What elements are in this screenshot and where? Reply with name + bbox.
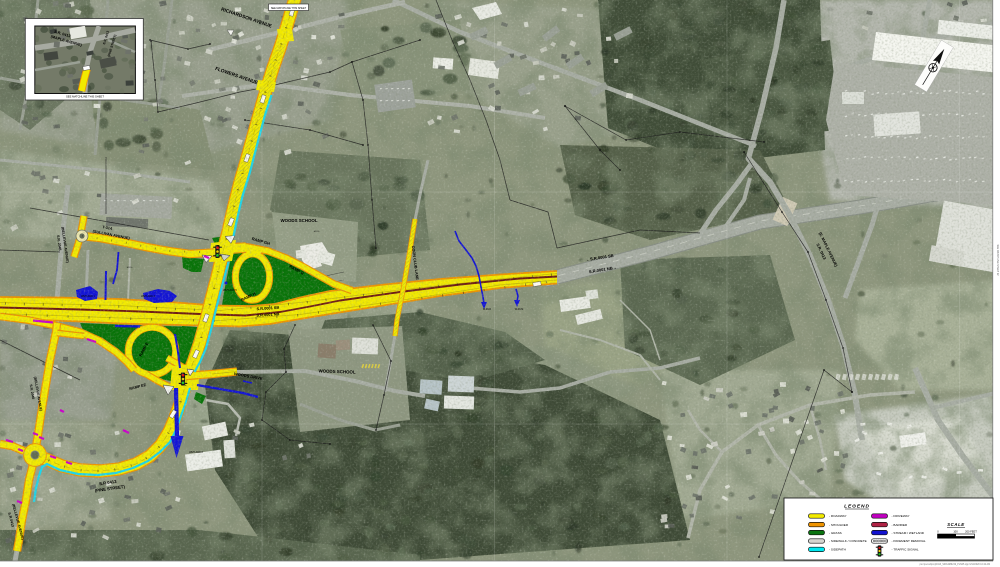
svg-text:M.O.L.: M.O.L. — [314, 231, 321, 233]
svg-text:SEE MATCHLINE THIS SHEET: SEE MATCHLINE THIS SHEET — [66, 94, 104, 98]
svg-text:- PAVEMENT REMOVAL: - PAVEMENT REMOVAL — [892, 539, 926, 543]
svg-text:- BARRIER: - BARRIER — [892, 523, 908, 527]
svg-text:LEGEND: LEGEND — [844, 504, 870, 510]
svg-text:SEE MATCHLINE SHEET 12: SEE MATCHLINE SHEET 12 — [996, 244, 999, 276]
svg-text:W-09-M: W-09-M — [515, 308, 523, 311]
svg-text:SCALE: SCALE — [947, 522, 965, 527]
svg-text:- SIDEPATH: - SIDEPATH — [829, 548, 846, 552]
svg-text:- SIDEWALK / CONCRETE: - SIDEWALK / CONCRETE — [829, 539, 867, 543]
svg-text:WETLAND 5: WETLAND 5 — [223, 289, 237, 292]
svg-text:WETLAND 3: WETLAND 3 — [141, 295, 155, 298]
svg-text:W-09-R: W-09-R — [483, 308, 491, 311]
svg-text:WOODS SCHOOL: WOODS SCHOOL — [280, 218, 317, 223]
svg-text:100: 100 — [953, 530, 958, 534]
svg-text:WETLAND 8: WETLAND 8 — [189, 451, 203, 454]
svg-text:pw:\\pennd\proj\0413_S09\d4892: pw:\\pennd\proj\0413_S09\d489219_PLN05.d… — [920, 563, 990, 566]
svg-text:200 FEET: 200 FEET — [965, 530, 977, 534]
svg-text:- ROADWAY: - ROADWAY — [829, 514, 847, 518]
svg-text:WETLAND 1: WETLAND 1 — [81, 295, 95, 298]
svg-text:- DRIVEWAY: - DRIVEWAY — [892, 514, 910, 518]
svg-text:M.O.L.: M.O.L. — [127, 267, 134, 269]
svg-text:- SHOULDER: - SHOULDER — [829, 523, 849, 527]
svg-text:- STREAM / WETLAND: - STREAM / WETLAND — [892, 531, 925, 535]
svg-text:- GRASS: - GRASS — [829, 531, 842, 535]
svg-text:SEE MATCHLINE THIS SHEET: SEE MATCHLINE THIS SHEET — [271, 7, 307, 10]
svg-text:- TRAFFIC SIGNAL: - TRAFFIC SIGNAL — [892, 548, 919, 552]
